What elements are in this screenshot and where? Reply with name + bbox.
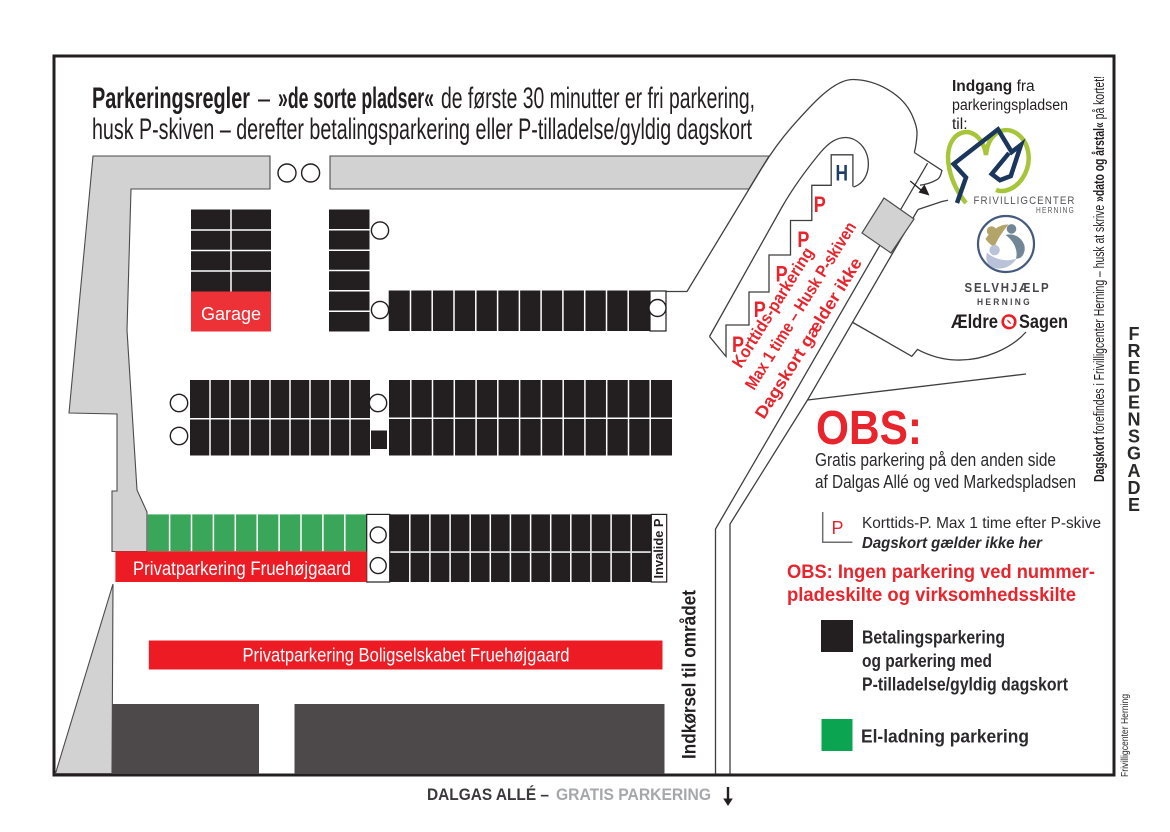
svg-text:HERNING: HERNING bbox=[1036, 205, 1075, 215]
svg-text:Gratis parkering på den anden: Gratis parkering på den anden side bbox=[815, 450, 1056, 470]
svg-text:Garage: Garage bbox=[201, 304, 261, 324]
svg-text:Indgang fra: Indgang fra bbox=[952, 78, 1035, 95]
svg-text:Sagen: Sagen bbox=[1019, 312, 1068, 333]
svg-text:Betalingsparkering: Betalingsparkering bbox=[862, 628, 1005, 648]
svg-text:Invalide P: Invalide P bbox=[651, 518, 666, 578]
svg-text:P: P bbox=[814, 192, 826, 217]
svg-text:Dagskort gælder ikke her: Dagskort gælder ikke her bbox=[862, 535, 1043, 552]
svg-text:Parkeringsregler – »de sorte p: Parkeringsregler – »de sorte pladser«de … bbox=[92, 82, 755, 115]
svg-text:HERNING: HERNING bbox=[977, 297, 1032, 307]
svg-text:OBS: Ingen parkering ved numme: OBS: Ingen parkering ved nummer- bbox=[787, 561, 1095, 583]
svg-text:Privatparkering Boligselskabet: Privatparkering Boligselskabet Fruehøjga… bbox=[243, 645, 570, 667]
svg-text:DALGAS ALLÉ –: DALGAS ALLÉ – bbox=[427, 785, 549, 804]
svg-text:husk P-skiven – derefter beta: husk P-skiven – derefter betalingsparker… bbox=[92, 113, 752, 146]
svg-text:OBS:: OBS: bbox=[816, 402, 922, 455]
svg-text:Privatparkering Fruehøjgaard: Privatparkering Fruehøjgaard bbox=[133, 558, 351, 580]
svg-text:El-ladning parkering: El-ladning parkering bbox=[861, 727, 1029, 747]
svg-text:parkeringspladsen: parkeringspladsen bbox=[952, 97, 1068, 114]
svg-text:H: H bbox=[836, 161, 849, 186]
svg-text:af Dalgas Allé og ved Markedsp: af Dalgas Allé og ved Markedspladsen bbox=[815, 472, 1076, 492]
svg-text:Dagskort forefindes i Frivilli: Dagskort forefindes i Frivilligcenter He… bbox=[1092, 76, 1108, 482]
svg-text:P: P bbox=[832, 518, 844, 538]
svg-text:Ældre: Ældre bbox=[951, 312, 998, 333]
svg-text:Frivilligcenter Herning: Frivilligcenter Herning bbox=[1120, 694, 1131, 777]
svg-text:og parkering med: og parkering med bbox=[862, 651, 992, 671]
svg-text:pladeskilte og virksomhedsskil: pladeskilte og virksomhedsskilte bbox=[787, 584, 1076, 606]
svg-text:Indkørsel til området: Indkørsel til området bbox=[680, 589, 701, 759]
svg-text:SELVHJÆLP: SELVHJÆLP bbox=[965, 281, 1051, 295]
svg-text:E: E bbox=[1128, 495, 1140, 515]
svg-text:GRATIS PARKERING: GRATIS PARKERING bbox=[556, 786, 711, 804]
svg-text:P-tilladelse/gyldig dagskort: P-tilladelse/gyldig dagskort bbox=[862, 675, 1068, 695]
svg-text:Korttids-P. Max 1 time efter P: Korttids-P. Max 1 time efter P-skive bbox=[862, 515, 1101, 532]
